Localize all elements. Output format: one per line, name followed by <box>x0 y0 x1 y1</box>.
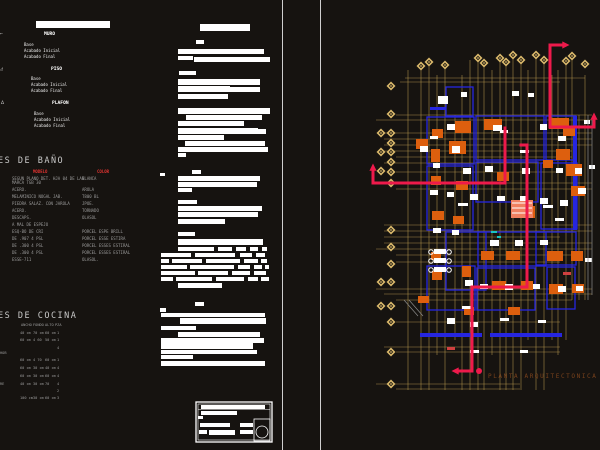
plafon-row-final: Acabado Final <box>34 123 66 128</box>
title-block-bar <box>209 430 235 435</box>
note-text-bar <box>178 49 264 54</box>
kitchen-row-cell: 60 cm <box>45 331 56 335</box>
piso-row-inicial: Acabado Inicial <box>31 82 68 87</box>
note-text-bar <box>244 259 258 263</box>
note-text-bar <box>250 247 258 251</box>
note-text-bar <box>200 24 250 31</box>
kitchen-row-cell: 4 70 <box>33 358 42 362</box>
furniture-block <box>543 160 553 168</box>
fixture-block <box>540 198 548 204</box>
note-text-bar <box>198 271 228 275</box>
fixture-block <box>585 258 592 262</box>
cyan-mark <box>491 231 497 233</box>
bath-row-color: JPOE. <box>82 201 94 206</box>
bath-col-modelo: MODELO <box>33 169 48 174</box>
kitchen-row-cell: 70 cm <box>33 331 44 335</box>
note-text-bar <box>185 141 265 146</box>
note-text-bar <box>216 277 244 281</box>
kitchen-row-cell: 60 cm <box>20 358 31 362</box>
note-text-bar <box>240 253 252 257</box>
note-text-bar <box>161 338 264 343</box>
grid-bubble-dot <box>571 55 573 57</box>
bath-row-modelo: ACERO. <box>12 187 26 192</box>
bath-row-modelo: DESCAPS. <box>12 215 31 220</box>
title-block-bar <box>201 405 265 409</box>
kitchen-row-cell: 60 cm <box>45 374 56 378</box>
kitchen-col-alto: ALTO <box>45 323 54 327</box>
finish-group-muro: MURO <box>44 31 55 37</box>
grid-bubble-dot <box>390 142 392 144</box>
kitchen-row-cell: 1 <box>57 331 59 335</box>
fixture-block <box>434 258 446 263</box>
note-text-bar <box>190 265 234 269</box>
bath-row-color: BLANCA <box>82 176 97 181</box>
note-text-bar <box>160 173 165 176</box>
note-text-bar <box>161 253 191 257</box>
keynote-symbol-3: ∆ <box>0 100 5 106</box>
bath-row-modelo: A MAL DE ESPEJO <box>12 222 49 227</box>
fixture-block <box>470 194 478 200</box>
note-text-bar <box>161 259 169 263</box>
kitchen-row-cell: 3 <box>57 396 59 400</box>
note-text-bar <box>178 176 260 181</box>
bath-row-color: TORNADO <box>82 208 99 213</box>
note-text-bar <box>254 265 262 269</box>
kitchen-row-cell: 4 <box>57 382 59 386</box>
furniture-block <box>418 296 429 303</box>
piso-row-base: Base <box>31 76 41 81</box>
grid-bubble-dot <box>444 64 446 66</box>
note-text-bar <box>178 94 228 99</box>
note-text-bar <box>160 308 166 312</box>
section-arrow-icon <box>562 41 569 48</box>
section-arrow-icon <box>590 113 597 120</box>
grid-bubble-dot <box>380 170 382 172</box>
title-block-bar <box>240 430 253 434</box>
fixture-block <box>452 146 460 153</box>
note-text-bar <box>178 121 244 126</box>
kitchen-row-cell: 30 cm <box>33 382 44 386</box>
furniture-block <box>453 216 464 224</box>
note-text-bar <box>206 259 240 263</box>
fixture-block <box>538 320 546 323</box>
bath-row-modelo: DE .300 4 PSL <box>12 243 44 248</box>
bath-row-modelo: ESSE-711 <box>12 257 32 262</box>
note-text-bar <box>256 253 265 257</box>
note-text-bar <box>178 206 262 211</box>
kitchen-row-cell: 60 cm <box>45 396 56 400</box>
wall-segment <box>490 333 562 337</box>
fixture-block <box>575 168 582 174</box>
note-text-bar <box>161 361 265 366</box>
bath-row-color: OLASOL. <box>82 257 99 262</box>
note-text-bar <box>178 332 260 337</box>
muro-row-final: Acabado Final <box>24 54 56 59</box>
note-text-bar <box>161 271 195 275</box>
fixture-block <box>438 96 448 104</box>
fixture-block <box>430 190 438 195</box>
note-text-bar <box>261 277 269 281</box>
grid-bubble-dot <box>499 57 501 59</box>
bath-row-modelo: ACERO. <box>12 208 26 213</box>
bath-row-modelo: MARCA TGB 30 <box>12 180 41 185</box>
kitchen-row-cell: 4 <box>57 346 59 350</box>
furniture-block <box>431 149 440 162</box>
room-outline <box>427 166 473 230</box>
fixture-block <box>543 205 553 208</box>
chair-icon <box>429 268 434 273</box>
note-text-bar <box>196 40 204 44</box>
bath-row-modelo: DE .907 4 PSL <box>12 236 44 241</box>
grid-bubble-dot <box>380 132 382 134</box>
note-text-bar <box>172 259 202 263</box>
grid-bubble-dot <box>390 281 392 283</box>
fixture-block <box>458 203 468 206</box>
fixture-block <box>433 228 441 233</box>
note-text-bar <box>161 355 193 359</box>
title-block-bar <box>199 430 207 434</box>
note-text-bar <box>161 277 173 281</box>
note-text-bar <box>262 247 267 251</box>
note-text-bar <box>195 302 204 306</box>
note-text-bar <box>178 247 214 251</box>
fixture-block <box>433 163 440 168</box>
grid-bubble-dot <box>390 151 392 153</box>
fixture-block <box>463 168 471 174</box>
note-text-bar <box>232 271 250 275</box>
kitchen-row-cell: 70 <box>45 382 49 386</box>
fixture-block <box>434 267 446 272</box>
chair-icon <box>447 268 452 273</box>
kitchen-schedule-title: ES DE COCINA <box>0 311 77 321</box>
kitchen-col-ancho: ANCHO <box>21 323 32 327</box>
kitchen-row-cell: 1 <box>57 358 59 362</box>
fixture-block <box>560 200 568 206</box>
title-block-bar <box>198 416 203 419</box>
fixture-block <box>485 166 493 172</box>
fixture-block <box>452 230 459 235</box>
note-text-bar <box>195 253 235 257</box>
furniture-block <box>547 251 563 261</box>
grid-bubble-dot <box>390 229 392 231</box>
note-text-bar <box>178 86 230 92</box>
piso-row-final: Acabado Final <box>31 88 63 93</box>
cyan-mark <box>497 236 501 238</box>
kitchen-row-cell: 60 cm <box>20 338 31 342</box>
kitchen-col-pza: PZA <box>55 323 62 327</box>
grid-bubble-dot <box>390 85 392 87</box>
kitchen-row-cell: 30 cm <box>33 374 44 378</box>
fixture-block <box>584 120 590 124</box>
bath-row-modelo: DE .300 4 PSL <box>12 250 44 255</box>
grid-bubble-dot <box>477 57 479 59</box>
fixture-block <box>497 196 505 201</box>
grid-bubble-dot <box>512 54 514 56</box>
kitchen-row-cell: 2 <box>57 389 59 393</box>
fixture-block <box>465 280 473 286</box>
keynote-symbol-1: ⌐ <box>0 31 3 37</box>
note-text-bar <box>178 239 263 245</box>
bath-row-color: PORCEL ESSE ESTIRA <box>82 236 126 241</box>
kitchen-row-cell: 30 cm <box>33 396 44 400</box>
note-text-bar <box>224 129 266 134</box>
keynote-symbol-2: ◿ <box>0 66 3 72</box>
bath-row-modelo: PIEDRA SALAZ. CON JAROLA <box>12 201 70 206</box>
kitchen-row-cell: 40 cm <box>20 382 31 386</box>
note-text-bar <box>178 56 193 60</box>
fixture-block <box>576 286 583 291</box>
grid-bubble-dot <box>390 263 392 265</box>
grid-bubble-dot <box>543 59 545 61</box>
note-text-bar <box>178 79 260 85</box>
emblem-circle <box>256 426 268 438</box>
note-text-bar <box>236 247 246 251</box>
bath-schedule-title: ES DE BAÑO <box>0 155 64 166</box>
kitchen-row-cell: 4 60 <box>33 338 42 342</box>
red-label-mark <box>447 347 455 350</box>
title-block-bar <box>200 423 230 427</box>
kitchen-row-label: RE <box>0 382 4 386</box>
grid-bubble-dot <box>505 61 507 63</box>
fixture-block <box>558 136 566 141</box>
grid-bubble-dot <box>584 63 586 65</box>
fixture-block <box>528 93 534 97</box>
kitchen-row-cell: 4 <box>57 366 59 370</box>
grid-bubble-dot <box>380 151 382 153</box>
bath-row-color: T800 BL <box>82 194 99 199</box>
note-text-bar <box>178 232 195 236</box>
fixture-block <box>447 124 455 130</box>
furniture-block <box>508 307 520 315</box>
grid-bubble-dot <box>390 351 392 353</box>
note-text-bar <box>161 343 253 349</box>
bath-row-color: AROLA <box>82 187 95 192</box>
grid-bubble-dot <box>380 305 382 307</box>
fixture-block <box>461 92 467 97</box>
note-text-bar <box>248 277 258 281</box>
fixture-block <box>430 136 438 139</box>
grid-bubble-dot <box>483 62 485 64</box>
note-text-bar <box>178 135 224 140</box>
note-text-bar <box>161 350 257 354</box>
note-text-bar <box>178 153 186 157</box>
furniture-block <box>506 251 520 260</box>
wall-segment <box>430 107 446 110</box>
kitchen-row-cell: 40 cm <box>45 366 56 370</box>
kitchen-row-cell: 60 cm <box>20 374 31 378</box>
kitchen-row-cell: 4 <box>57 374 59 378</box>
bath-row-modelo: ESQ-BO DE CRI <box>12 229 44 234</box>
grid-bubble-dot <box>390 132 392 134</box>
fixture-block <box>540 124 547 130</box>
fixture-block <box>434 249 446 254</box>
kitchen-col-fondo: FONDO <box>33 323 44 327</box>
note-text-bar <box>261 259 267 263</box>
chair-icon <box>447 250 452 255</box>
kitchen-row-label: HOB <box>0 351 7 355</box>
bath-row-color: OLASOL <box>82 215 97 220</box>
kitchen-row-cell: 30 cm <box>33 366 44 370</box>
fixture-block <box>578 188 586 194</box>
cad-workspace: SEGUN PLANO DET. HJA 04 DE LAVBLANCAMARC… <box>0 0 600 450</box>
furniture-block <box>432 211 444 220</box>
fixture-block <box>520 350 528 353</box>
grid-bubble-dot <box>535 54 537 56</box>
fixture-block <box>555 218 564 221</box>
fixture-block <box>447 318 455 324</box>
bath-row-color: PORCEL ESSES ESTIRAL <box>82 243 131 248</box>
fixture-block <box>490 240 499 246</box>
redacted-title-bar <box>36 21 110 28</box>
note-text-bar <box>161 265 187 269</box>
bath-row-color: PORCEL ESPE BRILL <box>82 229 124 234</box>
fixture-block <box>512 91 519 96</box>
generated-graphics: SEGUN PLANO DET. HJA 04 DE LAVBLANCAMARC… <box>0 0 598 450</box>
grid-bubble-dot <box>390 161 392 163</box>
bath-row-color: PORCEL ESSES ESTIRAL <box>82 250 131 255</box>
kitchen-row-cell: 40 cm <box>20 331 31 335</box>
note-text-bar <box>178 108 270 114</box>
section-dot <box>476 368 482 374</box>
grid-bubble-dot <box>390 321 392 323</box>
grid-bubble-dot <box>520 59 522 61</box>
note-text-bar <box>179 71 196 75</box>
kitchen-row-cell: 100 cm <box>20 396 33 400</box>
fixture-block <box>558 286 566 292</box>
muro-row-inicial: Acabado Inicial <box>24 48 61 53</box>
note-text-bar <box>218 247 232 251</box>
section-arrow-icon <box>452 367 459 374</box>
fixture-block <box>500 318 509 321</box>
red-label-mark <box>563 272 571 275</box>
kitchen-row-cell: 50 cm <box>45 338 56 342</box>
note-text-bar <box>180 318 266 324</box>
note-text-bar <box>178 182 257 187</box>
title-block-bar <box>240 423 253 427</box>
grid-bubble-dot <box>390 383 392 385</box>
kitchen-row-cell: 1 <box>57 338 59 342</box>
plafon-row-base: Base <box>34 111 44 116</box>
furniture-block <box>497 172 509 181</box>
note-text-bar <box>186 115 262 120</box>
room-outline <box>446 87 473 116</box>
title-block-bar <box>201 411 237 415</box>
note-text-bar <box>161 326 196 330</box>
kitchen-row-cell: 60 cm <box>45 358 56 362</box>
note-text-bar <box>176 277 212 281</box>
note-text-bar <box>161 313 265 317</box>
note-text-bar <box>228 87 260 92</box>
note-text-bar <box>192 170 201 174</box>
bath-row-modelo: MELAMINICO NOGAL JAB. <box>12 194 63 199</box>
finish-group-plafon: PLAFON <box>52 100 69 106</box>
plafon-row-inicial: Acabado Inicial <box>34 117 71 122</box>
fixture-block <box>420 146 428 152</box>
drawing-canvas[interactable]: SEGUN PLANO DET. HJA 04 DE LAVBLANCAMARC… <box>0 0 600 450</box>
furniture-block <box>556 149 570 160</box>
note-text-bar <box>254 271 266 275</box>
kitchen-row-cell: 60 cm <box>20 366 31 370</box>
grid-bubble-dot <box>565 60 567 62</box>
note-text-bar <box>178 219 225 224</box>
furniture-block <box>455 121 471 133</box>
fixture-block <box>447 192 454 197</box>
furniture-block <box>571 251 583 261</box>
grid-bubble-dot <box>390 171 392 173</box>
fixture-block <box>533 284 540 289</box>
furniture-block <box>462 266 471 277</box>
bath-col-color: COLOR <box>97 169 110 174</box>
muro-row-base: Base <box>24 42 34 47</box>
grid-bubble-dot <box>420 65 422 67</box>
grid-bubble-dot <box>390 305 392 307</box>
fixture-block <box>556 168 563 173</box>
fixture-block <box>540 240 548 245</box>
fixture-block <box>462 306 471 309</box>
grid-bubble-dot <box>428 61 430 63</box>
chair-icon <box>447 259 452 264</box>
note-text-bar <box>178 212 258 217</box>
note-text-bar <box>194 57 270 62</box>
finish-group-piso: PISO <box>51 66 62 72</box>
note-text-bar <box>178 147 268 152</box>
note-text-bar <box>178 188 192 192</box>
note-text-bar <box>238 265 250 269</box>
grid-bubble-dot <box>390 113 392 115</box>
grid-bubble-dot <box>380 281 382 283</box>
furniture-block <box>481 251 494 260</box>
fixture-block <box>515 240 523 246</box>
furniture-block <box>432 271 442 280</box>
note-text-bar <box>178 200 197 204</box>
section-arrow-icon <box>369 164 376 171</box>
plan-caption: PLANTA ARQUITECTONICA <box>488 373 597 380</box>
note-text-bar <box>178 283 222 288</box>
grid-bubble-dot <box>390 246 392 248</box>
note-text-bar <box>265 265 269 269</box>
